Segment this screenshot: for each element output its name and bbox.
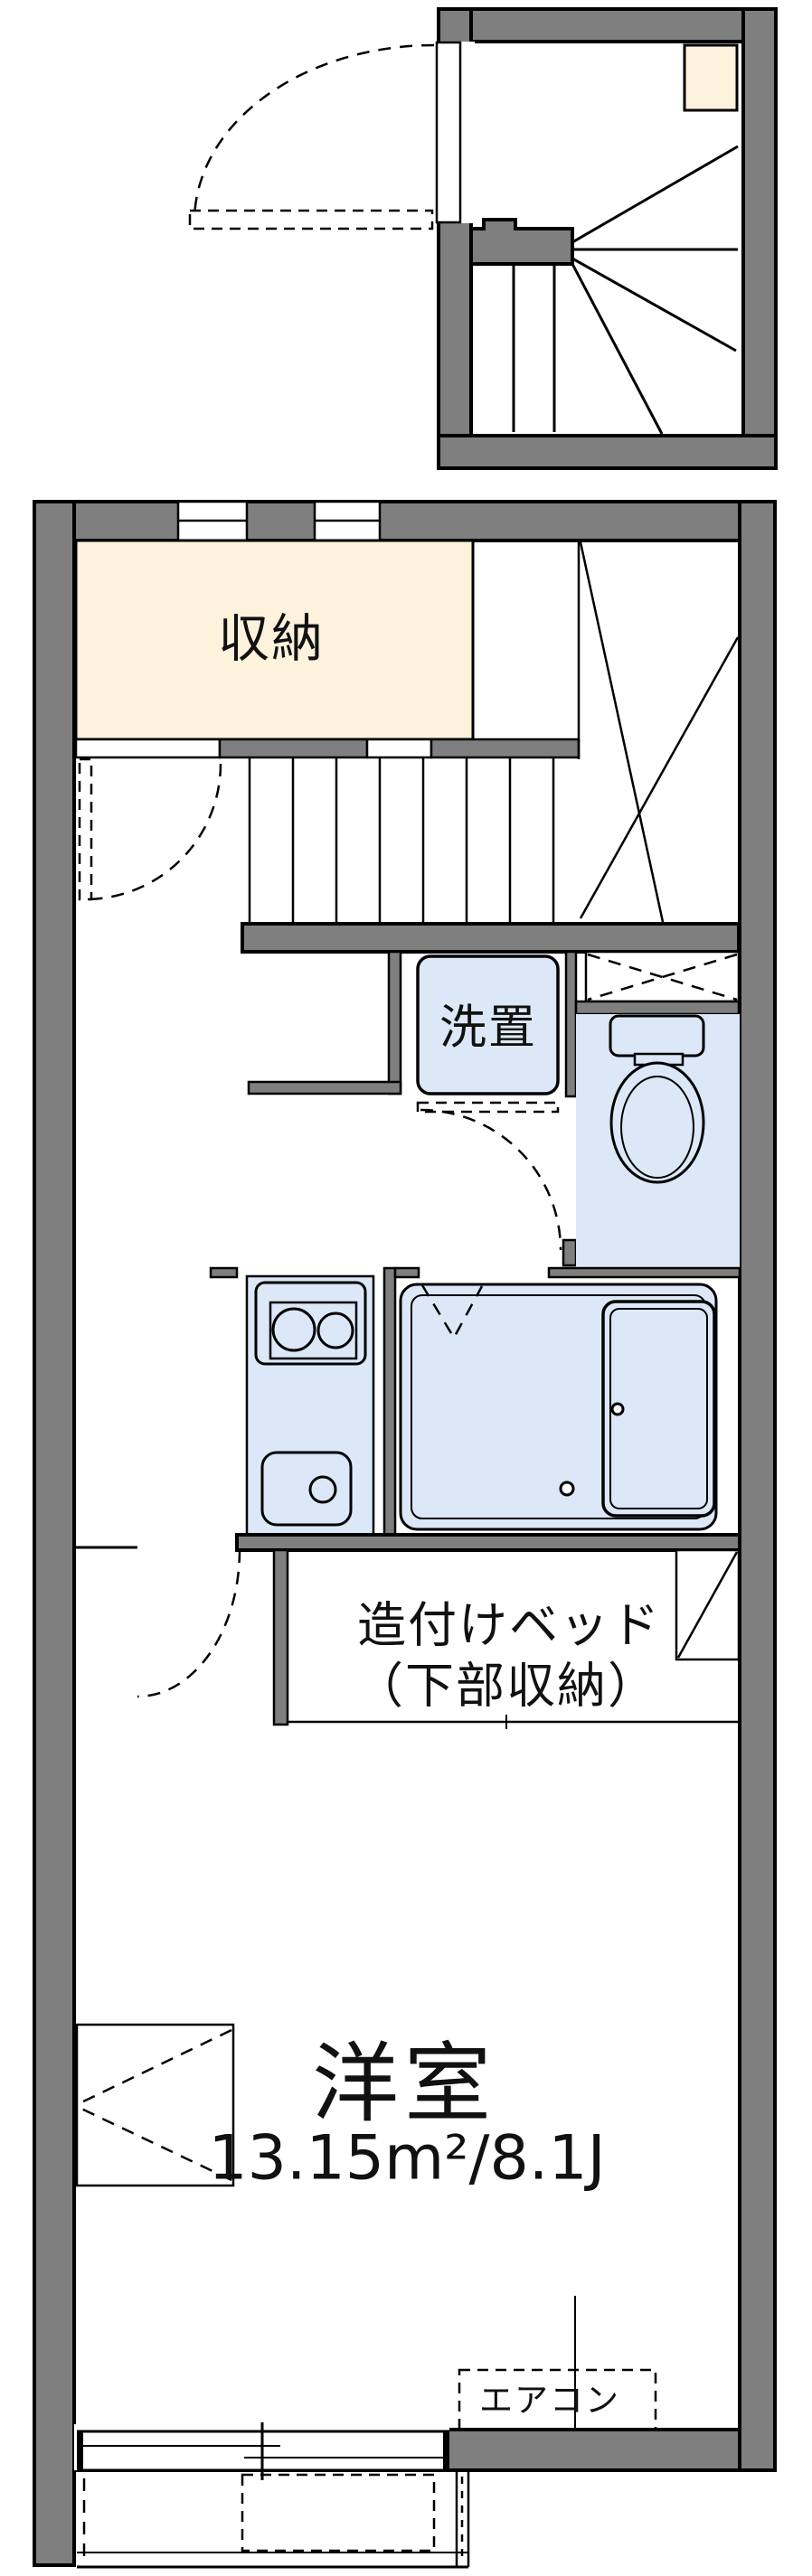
aircon-label: エアコン: [479, 2373, 620, 2421]
western-room-label: 洋室: [312, 2014, 496, 2139]
storage-door-swing-arc: [85, 764, 221, 899]
bed-label-line2: （下部収納）: [354, 1646, 658, 1717]
bathtub-icon: [603, 1302, 714, 1516]
sanitary-wall-top: [242, 924, 739, 952]
unit-wall-left: [34, 502, 74, 2565]
kitchen-wall-stub: [211, 1268, 237, 1277]
laundry-door-swing-arc: [420, 1110, 561, 1250]
stair-landing-box: [685, 45, 737, 110]
stairwell-wall-right: [743, 9, 776, 468]
stair-treads-run: [250, 757, 553, 924]
stairwell-wall-bottom: [439, 436, 776, 468]
sanitary-block: [242, 924, 740, 1268]
bed-wall-left: [274, 1550, 288, 1725]
bathroom: [395, 1268, 740, 1529]
floor-plan: 収納 洗置 造付けベッド （下部収納） 洋室 13.15m²/8.1J エアコン: [0, 0, 812, 2576]
kitchen: [211, 1268, 395, 1547]
north-window-2: [315, 502, 380, 541]
storage-opening-right: [367, 739, 431, 757]
bath-wall-seg2: [549, 1268, 740, 1277]
bath-wall-seg1: [395, 1268, 419, 1277]
stairwell-wall-top: [439, 9, 776, 42]
stairwell-block: [190, 9, 776, 468]
north-window-1: [178, 502, 247, 541]
laundry-room-label: 洗置: [439, 990, 537, 1058]
toilet-wall-band: [576, 1001, 739, 1014]
bed-wall-top: [237, 1535, 740, 1550]
entry-door-leaf: [190, 211, 432, 229]
unit-wall-right: [740, 502, 775, 2470]
stair-winder-post: [471, 220, 572, 264]
tub-faucet-icon: [612, 1404, 623, 1415]
western-room-area: 13.15m²/8.1J: [208, 2123, 605, 2195]
laundry-toilet-divider: [566, 952, 576, 1096]
storage-door-leaf: [80, 759, 91, 899]
storage-wall-seg2: [431, 739, 579, 757]
laundry-door-leaf: [418, 1103, 558, 1112]
toilet-room: [576, 952, 740, 1268]
toilet-icon: [610, 1016, 703, 1182]
entry-door-frame: [437, 42, 460, 222]
entry-door-swing-arc: [194, 45, 434, 221]
stair-diagonal-2: [581, 637, 738, 918]
storage-opening-left: [76, 739, 220, 757]
storage-room: [76, 541, 579, 899]
toilet-wall-stub: [563, 1240, 576, 1265]
hall-wall-vert: [389, 952, 401, 1094]
unit-wall-top: [34, 502, 775, 541]
storage-room-label: 収納: [218, 597, 325, 672]
bedroom-door-swing-arc: [137, 1550, 240, 1697]
drain-icon: [561, 1482, 573, 1495]
kitchen-bath-wall: [384, 1268, 395, 1547]
stair-treads-upper: [514, 146, 738, 434]
balcony: [74, 2422, 468, 2567]
hall-wall-stub: [249, 1082, 401, 1094]
stair-diagonal-1: [581, 542, 663, 922]
balcony-dashed-area: [242, 2475, 434, 2551]
storage-wall-seg1: [220, 739, 367, 757]
